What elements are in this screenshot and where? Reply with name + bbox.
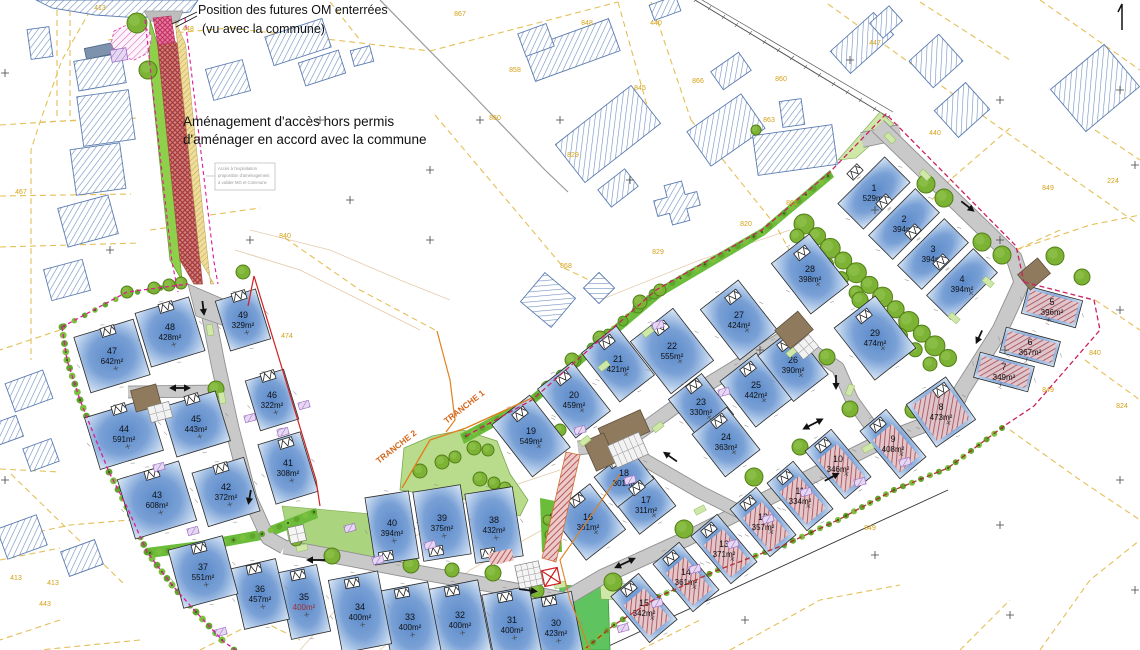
svg-text:840: 840 <box>279 233 291 240</box>
svg-text:44: 44 <box>119 424 129 434</box>
svg-text:Accès à l'exploitation: Accès à l'exploitation <box>218 166 258 171</box>
svg-text:862: 862 <box>786 200 798 207</box>
svg-text:(vu avec la commune): (vu avec la commune) <box>202 22 325 36</box>
svg-text:d'aménager en accord avec la c: d'aménager en accord avec la commune <box>183 132 426 147</box>
svg-text:1: 1 <box>871 183 876 193</box>
svg-text:432m²: 432m² <box>483 526 506 535</box>
svg-text:549m²: 549m² <box>520 437 543 446</box>
svg-text:555m²: 555m² <box>661 352 684 361</box>
svg-text:372m²: 372m² <box>215 493 238 502</box>
svg-text:442m²: 442m² <box>745 391 768 400</box>
svg-text:36: 36 <box>255 584 265 594</box>
svg-text:858: 858 <box>509 67 521 74</box>
svg-text:3: 3 <box>930 244 935 254</box>
svg-text:35: 35 <box>299 592 309 602</box>
svg-text:467: 467 <box>15 189 27 196</box>
svg-text:29: 29 <box>870 328 880 338</box>
svg-text:2: 2 <box>901 214 906 224</box>
svg-text:20: 20 <box>569 390 579 400</box>
svg-text:6: 6 <box>1027 337 1032 347</box>
svg-text:38: 38 <box>489 515 499 525</box>
svg-text:394m²: 394m² <box>951 285 974 294</box>
svg-text:224: 224 <box>1107 178 1119 185</box>
svg-text:849: 849 <box>1042 185 1054 192</box>
svg-text:443: 443 <box>39 601 51 608</box>
svg-text:551m²: 551m² <box>192 573 215 582</box>
svg-text:311m²: 311m² <box>635 506 657 515</box>
svg-text:428m²: 428m² <box>159 333 182 342</box>
svg-text:413: 413 <box>47 580 59 587</box>
svg-text:28: 28 <box>805 264 815 274</box>
svg-text:413: 413 <box>94 5 106 12</box>
svg-text:30: 30 <box>551 618 561 628</box>
svg-text:7: 7 <box>1001 362 1006 372</box>
svg-text:421m²: 421m² <box>607 365 630 374</box>
svg-text:33: 33 <box>405 612 415 622</box>
svg-text:829: 829 <box>567 152 579 159</box>
svg-text:860: 860 <box>775 76 787 83</box>
svg-text:408m²: 408m² <box>882 445 905 454</box>
svg-text:448: 448 <box>182 26 194 33</box>
svg-text:330m²: 330m² <box>690 408 713 417</box>
svg-text:473m²: 473m² <box>930 413 953 422</box>
svg-text:349m²: 349m² <box>993 373 1016 382</box>
svg-text:642m²: 642m² <box>101 357 124 366</box>
svg-text:868: 868 <box>560 263 572 270</box>
svg-text:21: 21 <box>613 354 623 364</box>
svg-text:25: 25 <box>751 380 761 390</box>
svg-text:849: 849 <box>864 525 876 532</box>
svg-text:375m²: 375m² <box>431 524 454 533</box>
svg-text:845: 845 <box>634 85 646 92</box>
svg-text:591m²: 591m² <box>113 435 136 444</box>
svg-text:46: 46 <box>267 390 277 400</box>
svg-text:5: 5 <box>1049 297 1054 307</box>
svg-text:371m²: 371m² <box>713 550 736 559</box>
svg-text:17: 17 <box>641 495 651 505</box>
svg-text:45: 45 <box>191 414 201 424</box>
svg-text:608m²: 608m² <box>146 501 169 510</box>
svg-text:49: 49 <box>238 310 248 320</box>
svg-text:342m²: 342m² <box>633 609 656 618</box>
svg-text:867: 867 <box>454 11 466 18</box>
svg-text:863: 863 <box>763 117 775 124</box>
svg-text:400m²: 400m² <box>449 621 472 630</box>
svg-text:9: 9 <box>890 434 895 444</box>
svg-text:848: 848 <box>581 20 593 27</box>
svg-text:860: 860 <box>489 115 501 122</box>
svg-text:8: 8 <box>938 402 943 412</box>
svg-text:308m²: 308m² <box>277 469 300 478</box>
svg-text:440: 440 <box>650 20 662 27</box>
svg-text:39: 39 <box>437 513 447 523</box>
svg-text:440: 440 <box>929 130 941 137</box>
svg-text:37: 37 <box>198 562 208 572</box>
svg-text:Position des futures OM enterr: Position des futures OM enterrées <box>198 3 388 17</box>
svg-text:329m²: 329m² <box>232 321 255 330</box>
svg-text:363m²: 363m² <box>715 443 738 452</box>
svg-text:400m²: 400m² <box>399 623 422 632</box>
svg-text:447: 447 <box>869 40 881 47</box>
svg-text:18: 18 <box>619 468 629 478</box>
svg-text:10: 10 <box>833 454 843 464</box>
svg-text:à valider MO et Commune: à valider MO et Commune <box>218 180 268 185</box>
svg-text:41: 41 <box>283 458 293 468</box>
svg-text:23: 23 <box>696 397 706 407</box>
svg-text:322m²: 322m² <box>261 401 284 410</box>
svg-text:346m²: 346m² <box>827 465 850 474</box>
svg-text:32: 32 <box>455 610 465 620</box>
svg-text:367m²: 367m² <box>1019 348 1042 357</box>
svg-text:357m²: 357m² <box>752 523 775 532</box>
svg-text:24: 24 <box>721 432 731 442</box>
svg-text:361m²: 361m² <box>675 578 698 587</box>
svg-text:413: 413 <box>10 575 22 582</box>
svg-text:400m²: 400m² <box>501 626 524 635</box>
svg-text:398m²: 398m² <box>799 275 822 284</box>
svg-text:457m²: 457m² <box>249 595 272 604</box>
svg-text:43: 43 <box>152 490 162 500</box>
svg-text:19: 19 <box>526 426 536 436</box>
svg-text:394m²: 394m² <box>381 529 404 538</box>
svg-text:42: 42 <box>221 482 231 492</box>
svg-text:829: 829 <box>652 249 664 256</box>
svg-text:31: 31 <box>507 615 517 625</box>
svg-text:396m²: 396m² <box>1041 308 1064 317</box>
svg-text:423m²: 423m² <box>545 629 568 638</box>
svg-text:840: 840 <box>1089 350 1101 357</box>
svg-text:Aménagement d'accès hors permi: Aménagement d'accès hors permis <box>183 114 394 129</box>
svg-text:820: 820 <box>740 221 752 228</box>
svg-text:443m²: 443m² <box>185 425 208 434</box>
svg-text:474m²: 474m² <box>864 339 887 348</box>
svg-text:334m²: 334m² <box>789 497 812 506</box>
svg-text:849: 849 <box>1042 387 1054 394</box>
svg-text:proposition d'aménagement: proposition d'aménagement <box>218 173 270 178</box>
svg-text:4: 4 <box>959 274 964 284</box>
svg-text:40: 40 <box>387 518 397 528</box>
svg-text:27: 27 <box>734 310 744 320</box>
svg-text:48: 48 <box>165 322 175 332</box>
svg-text:459m²: 459m² <box>563 401 586 410</box>
svg-text:47: 47 <box>107 346 117 356</box>
svg-text:34: 34 <box>355 602 365 612</box>
svg-text:400m²: 400m² <box>349 613 372 622</box>
svg-text:22: 22 <box>667 341 677 351</box>
svg-text:824: 824 <box>1116 403 1128 410</box>
svg-text:390m²: 390m² <box>782 366 805 375</box>
svg-text:866: 866 <box>692 78 704 85</box>
svg-text:474: 474 <box>281 333 293 340</box>
svg-text:424m²: 424m² <box>728 321 751 330</box>
svg-text:400m²: 400m² <box>293 603 316 612</box>
